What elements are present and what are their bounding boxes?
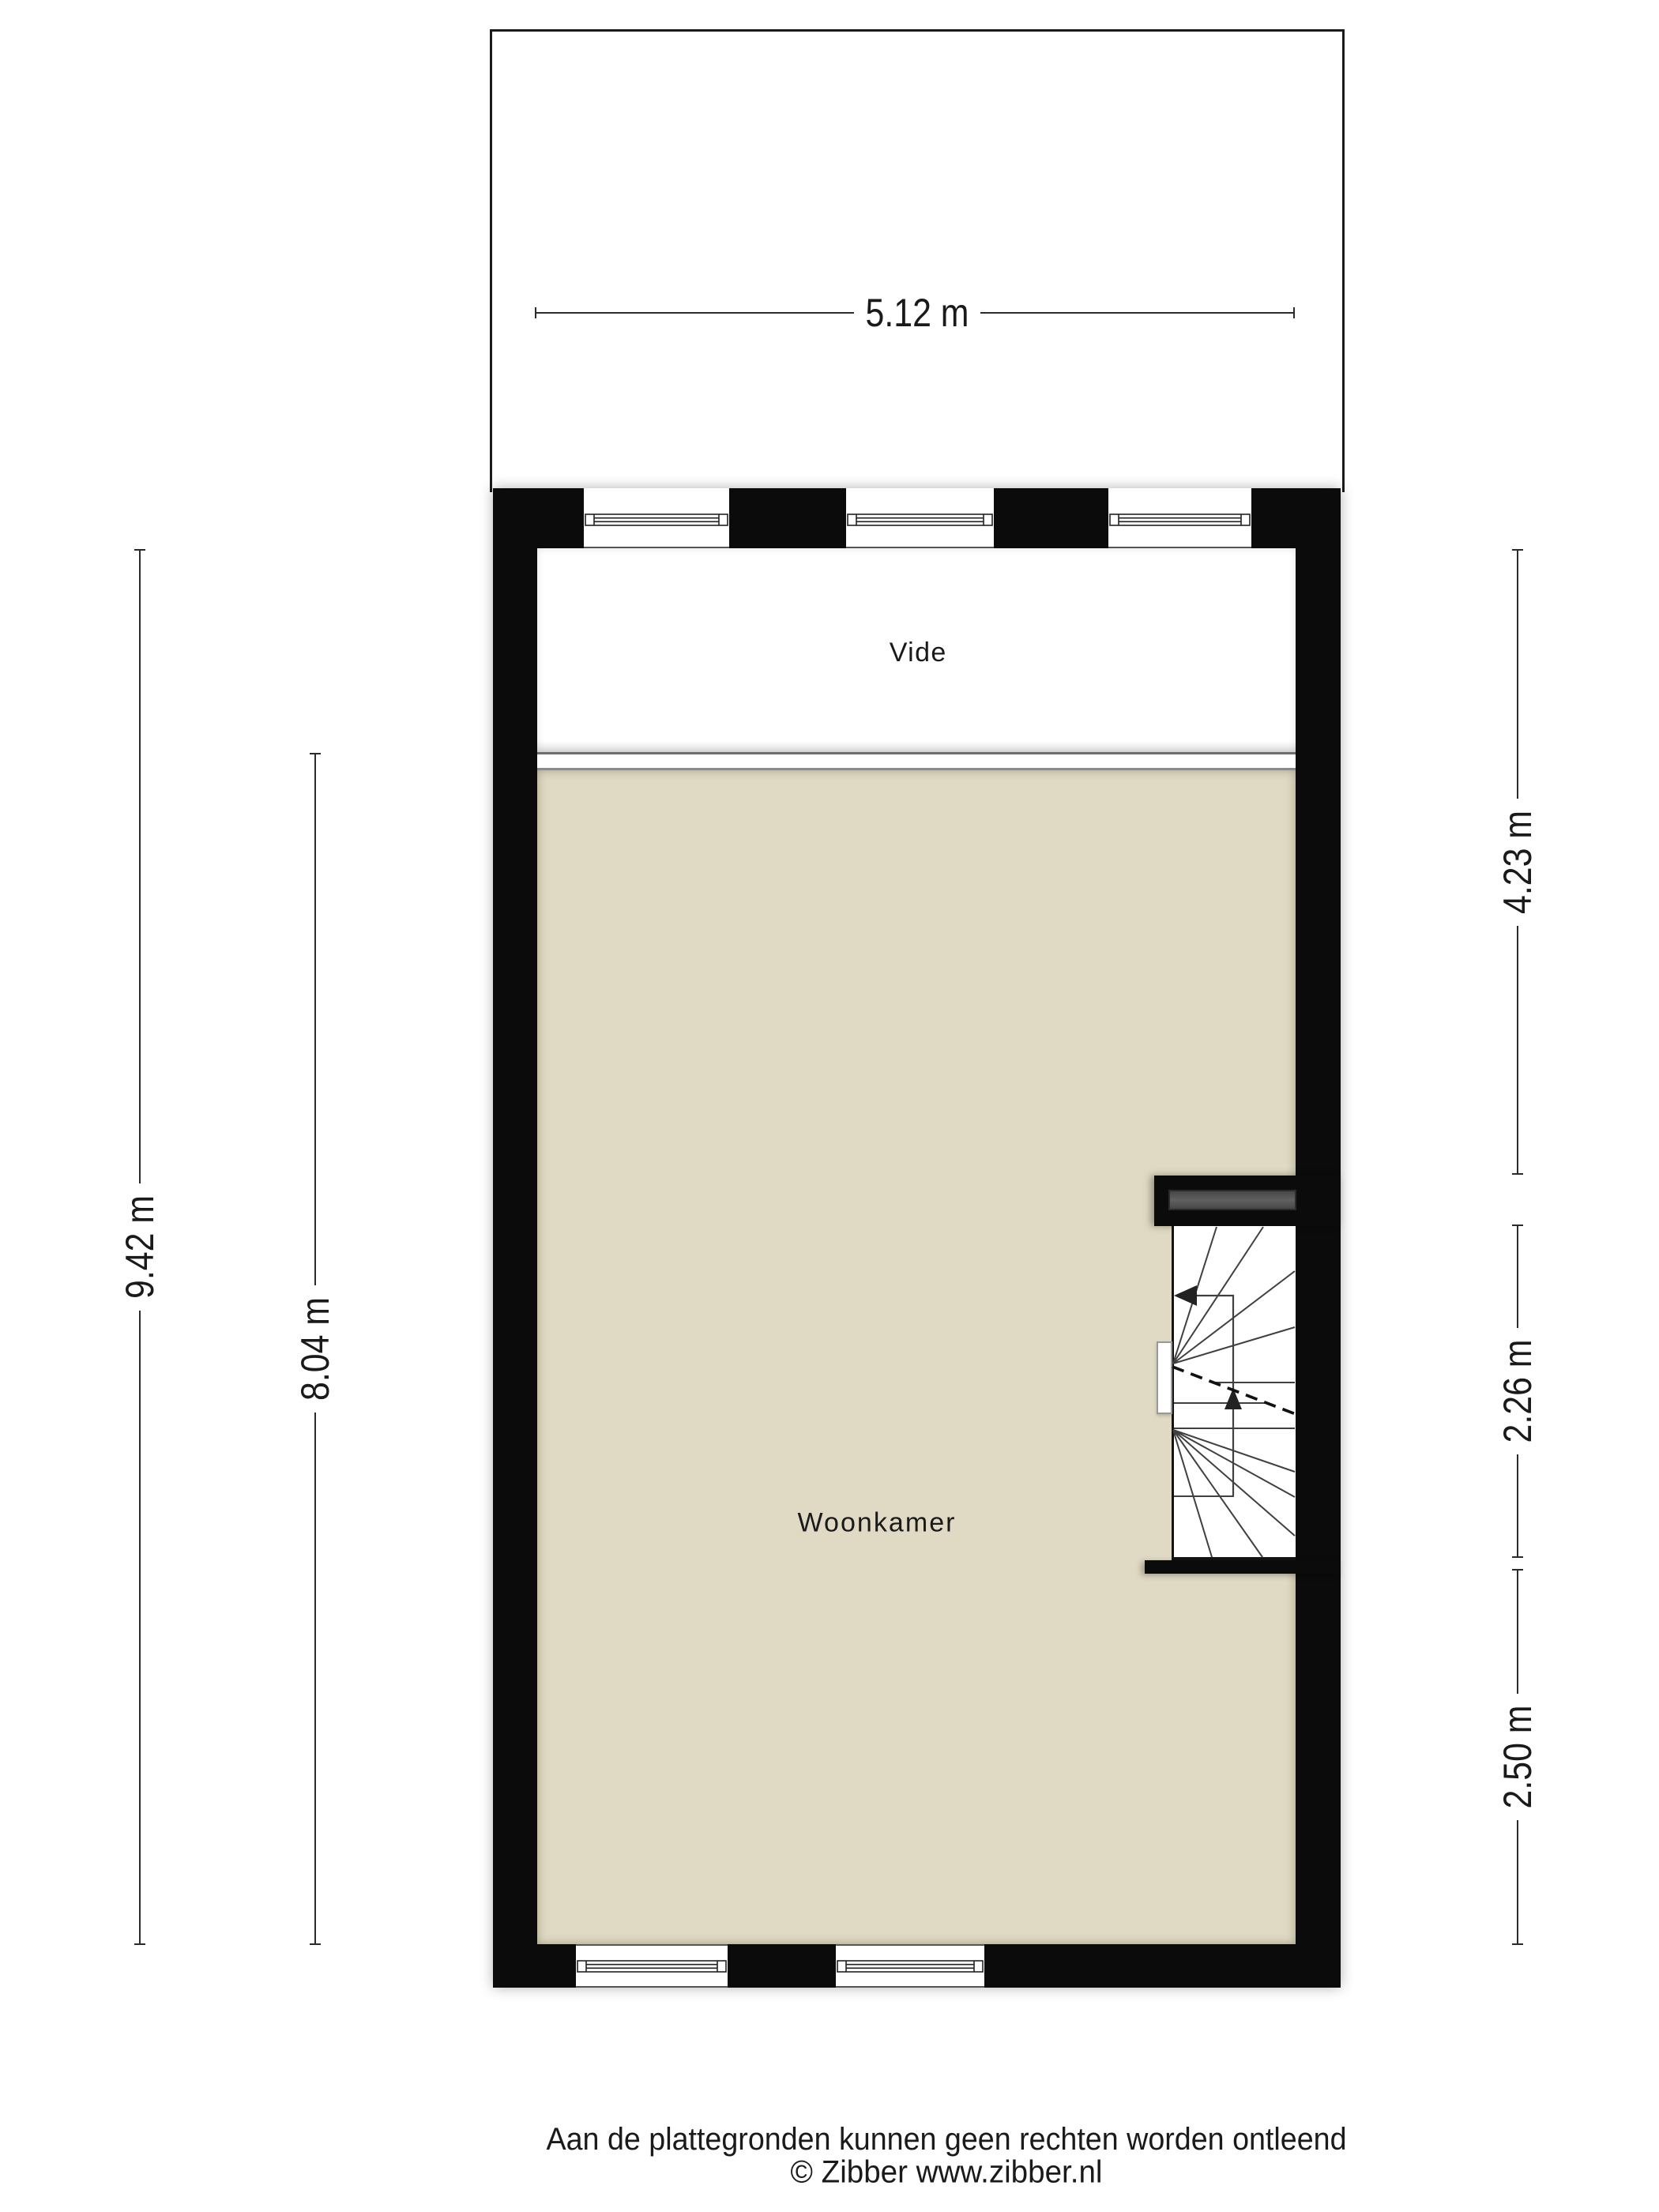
svg-text:© Zibber www.zibber.nl: © Zibber www.zibber.nl [791,2155,1103,2190]
svg-text:8.04 m: 8.04 m [293,1297,337,1401]
svg-text:2.50 m: 2.50 m [1495,1706,1540,1809]
svg-text:2.26 m: 2.26 m [1495,1340,1540,1443]
svg-text:Aan de plattegronden kunnen ge: Aan de plattegronden kunnen geen rechten… [547,2122,1347,2157]
svg-text:Woonkamer: Woonkamer [798,1507,955,1537]
svg-text:5.12 m: 5.12 m [866,291,969,335]
svg-text:4.23 m: 4.23 m [1495,811,1540,914]
svg-text:Vide: Vide [890,638,946,668]
svg-text:9.42 m: 9.42 m [118,1195,162,1299]
